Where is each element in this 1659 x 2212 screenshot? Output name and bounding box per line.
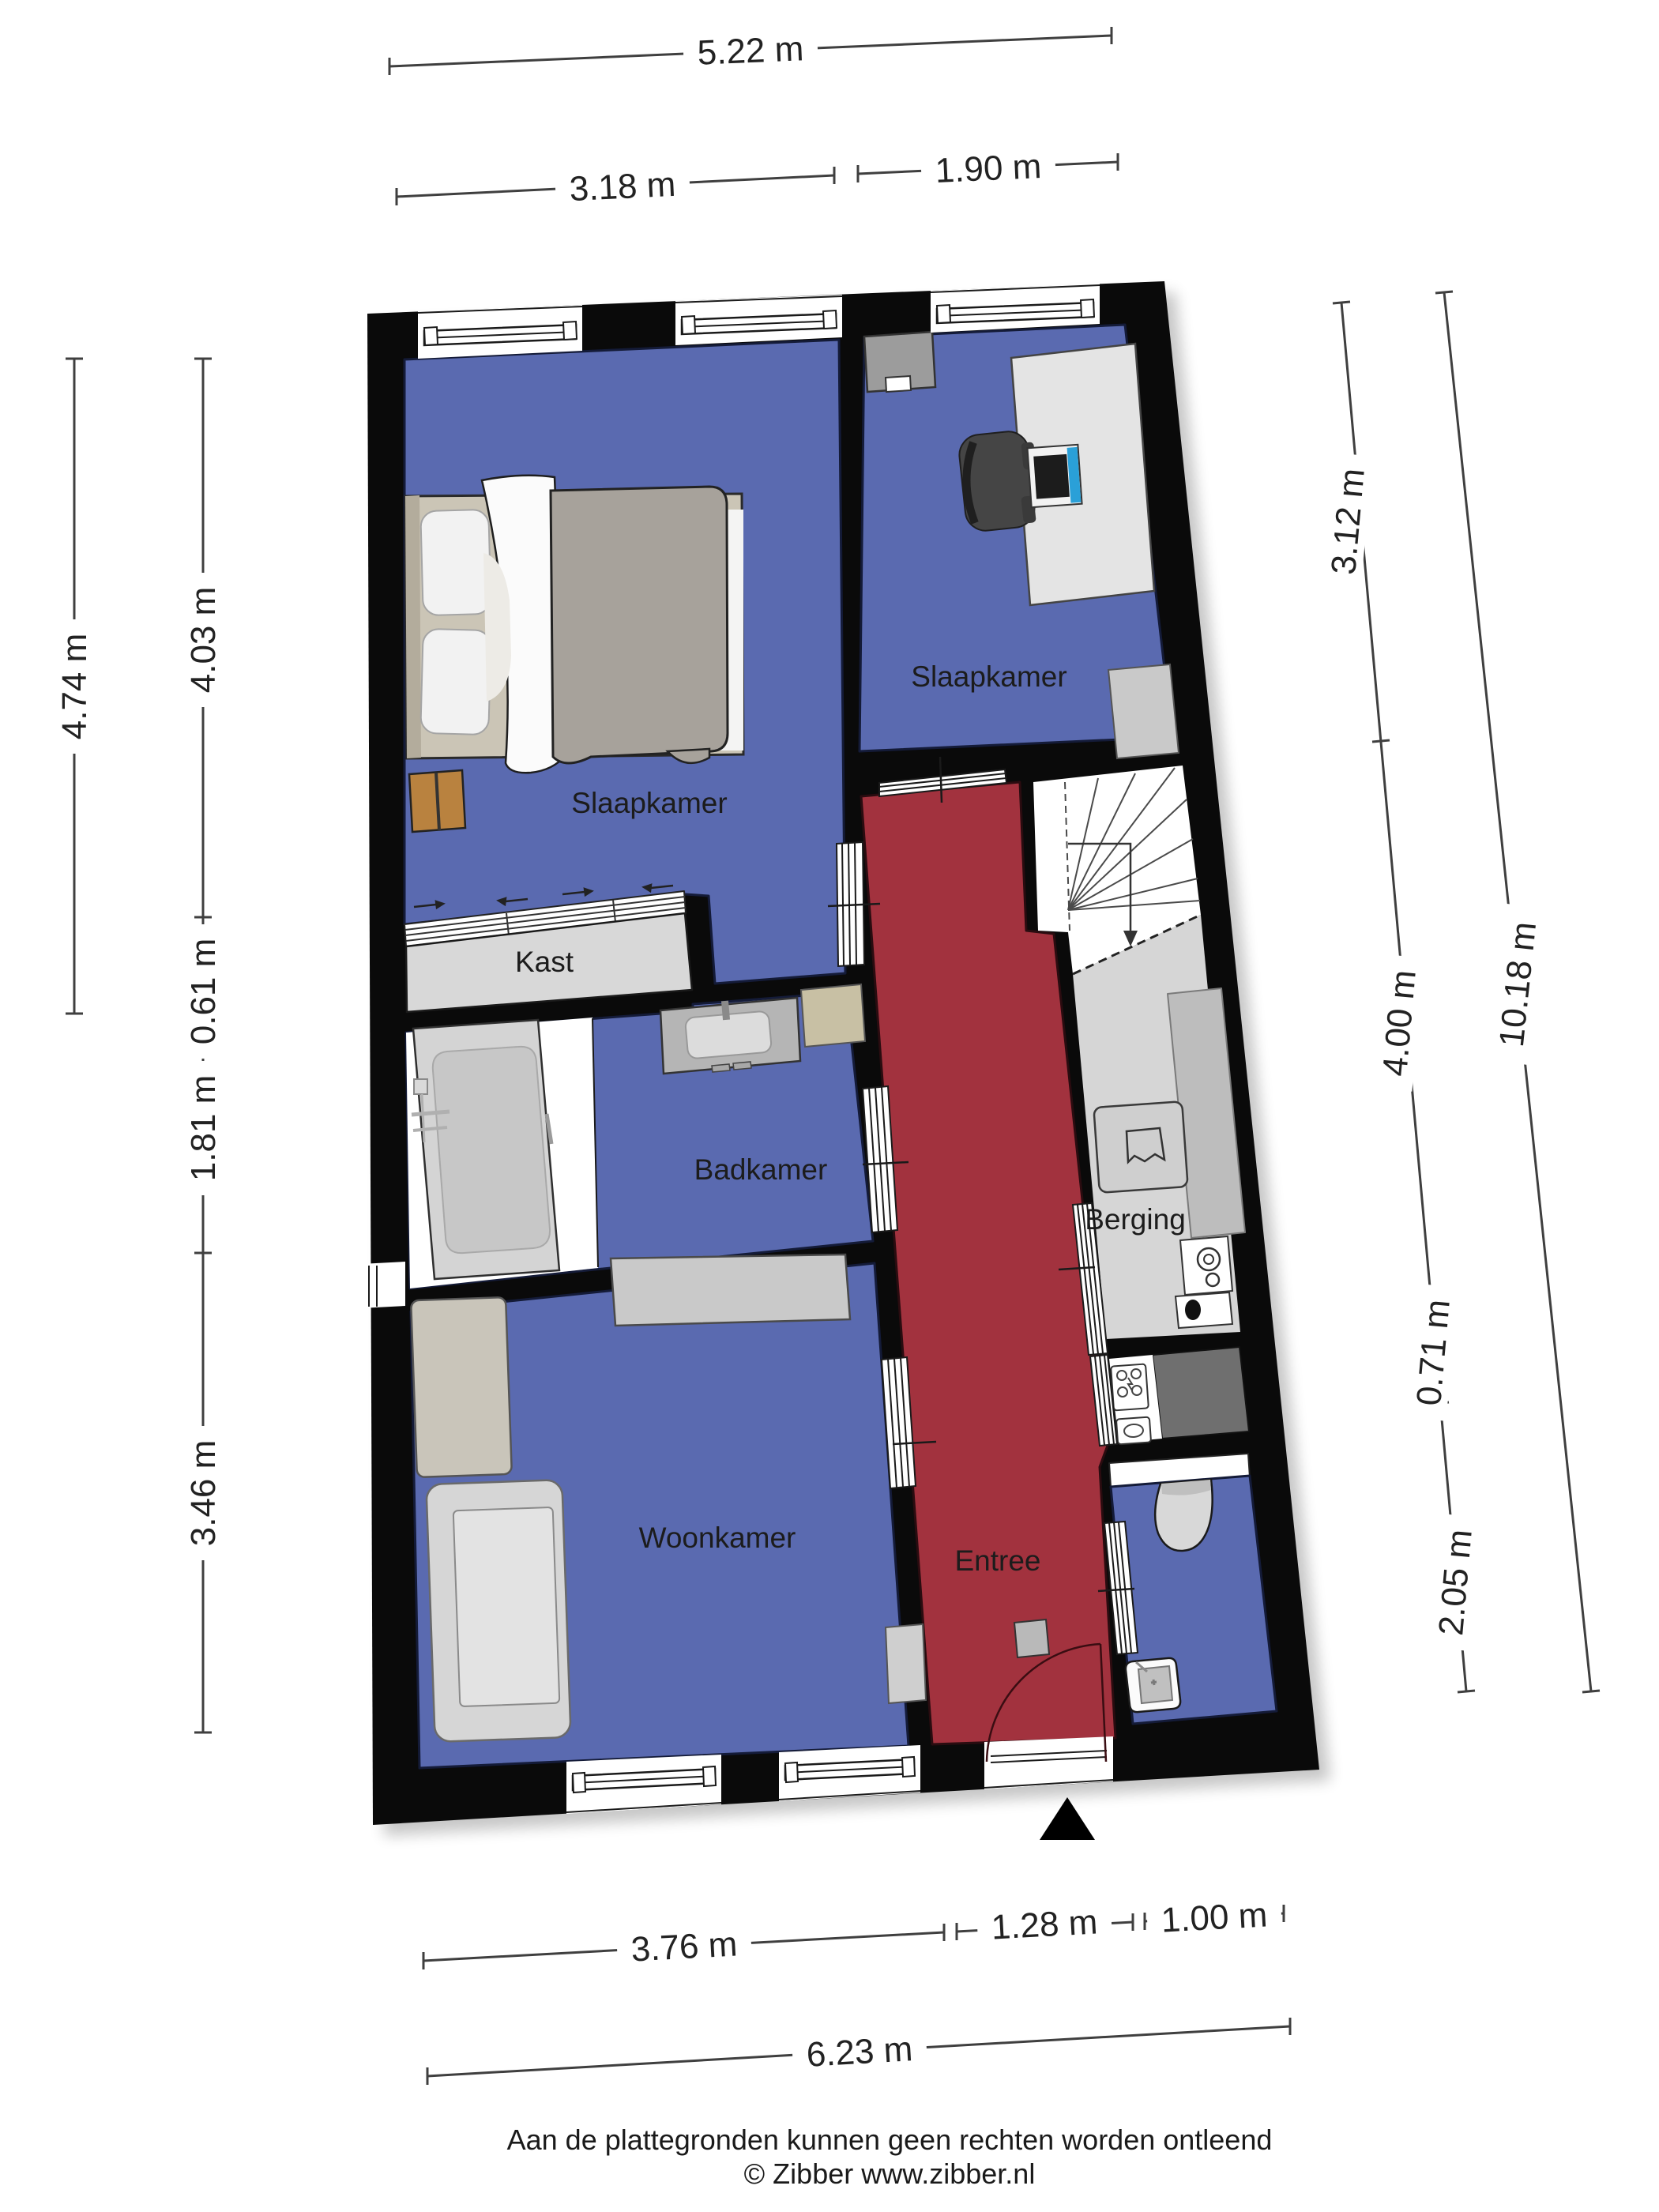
svg-text:Kast: Kast [515, 946, 574, 978]
svg-text:3.76 m: 3.76 m [630, 1924, 739, 1969]
svg-text:4.03 m: 4.03 m [184, 587, 223, 694]
svg-text:5.22 m: 5.22 m [697, 29, 804, 73]
svg-text:1.28 m: 1.28 m [991, 1902, 1099, 1947]
svg-text:6.23 m: 6.23 m [805, 2030, 913, 2075]
svg-text:Entree: Entree [954, 1544, 1040, 1577]
svg-text:Slaapkamer: Slaapkamer [571, 787, 727, 819]
svg-text:1.00 m: 1.00 m [1161, 1895, 1269, 1939]
svg-text:© Zibber www.zibber.nl: © Zibber www.zibber.nl [744, 2157, 1036, 2190]
svg-text:Slaapkamer: Slaapkamer [911, 660, 1066, 693]
svg-text:Aan de plattegronden kunnen ge: Aan de plattegronden kunnen geen rechten… [507, 2124, 1273, 2156]
svg-text:0.61 m: 0.61 m [184, 939, 223, 1045]
svg-text:Berging: Berging [1085, 1203, 1186, 1236]
svg-text:1.90 m: 1.90 m [935, 147, 1043, 190]
svg-text:Woonkamer: Woonkamer [639, 1522, 796, 1554]
svg-text:Badkamer: Badkamer [694, 1153, 828, 1186]
svg-text:3.46 m: 3.46 m [184, 1440, 223, 1547]
svg-text:4.74 m: 4.74 m [55, 634, 94, 740]
svg-text:1.81 m: 1.81 m [184, 1075, 223, 1182]
svg-text:3.18 m: 3.18 m [569, 165, 677, 209]
